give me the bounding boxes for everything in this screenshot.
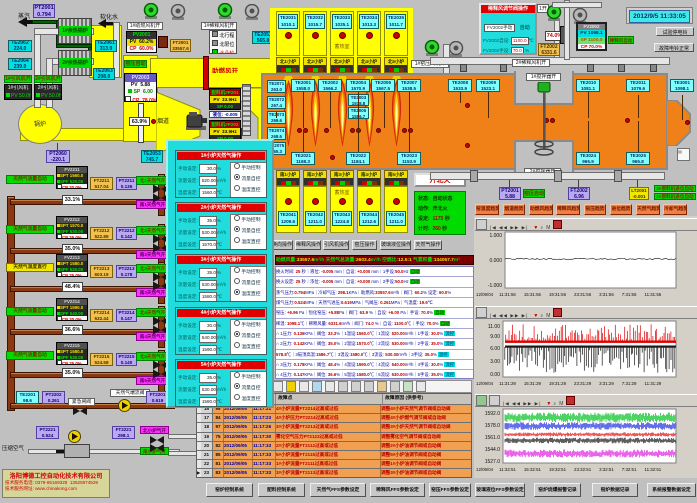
svg-text:1561.0: 1561.0 (485, 435, 501, 441)
svg-text:3.00: 3.00 (490, 359, 500, 365)
svg-text:6.00: 6.00 (490, 346, 500, 352)
svg-text:9.00: 9.00 (490, 334, 500, 340)
svg-text:11.00: 11.00 (488, 324, 500, 330)
svg-text:1592.0: 1592.0 (485, 411, 501, 417)
svg-text:1.000: 1.000 (489, 233, 502, 239)
svg-text:1527.0: 1527.0 (485, 459, 501, 465)
svg-text:0.000: 0.000 (489, 258, 502, 264)
svg-text:0.00: 0.00 (490, 372, 500, 378)
svg-text:1544.0: 1544.0 (485, 447, 501, 453)
svg-text:-1.000: -1.000 (488, 283, 502, 289)
svg-text:1578.0: 1578.0 (485, 423, 501, 429)
